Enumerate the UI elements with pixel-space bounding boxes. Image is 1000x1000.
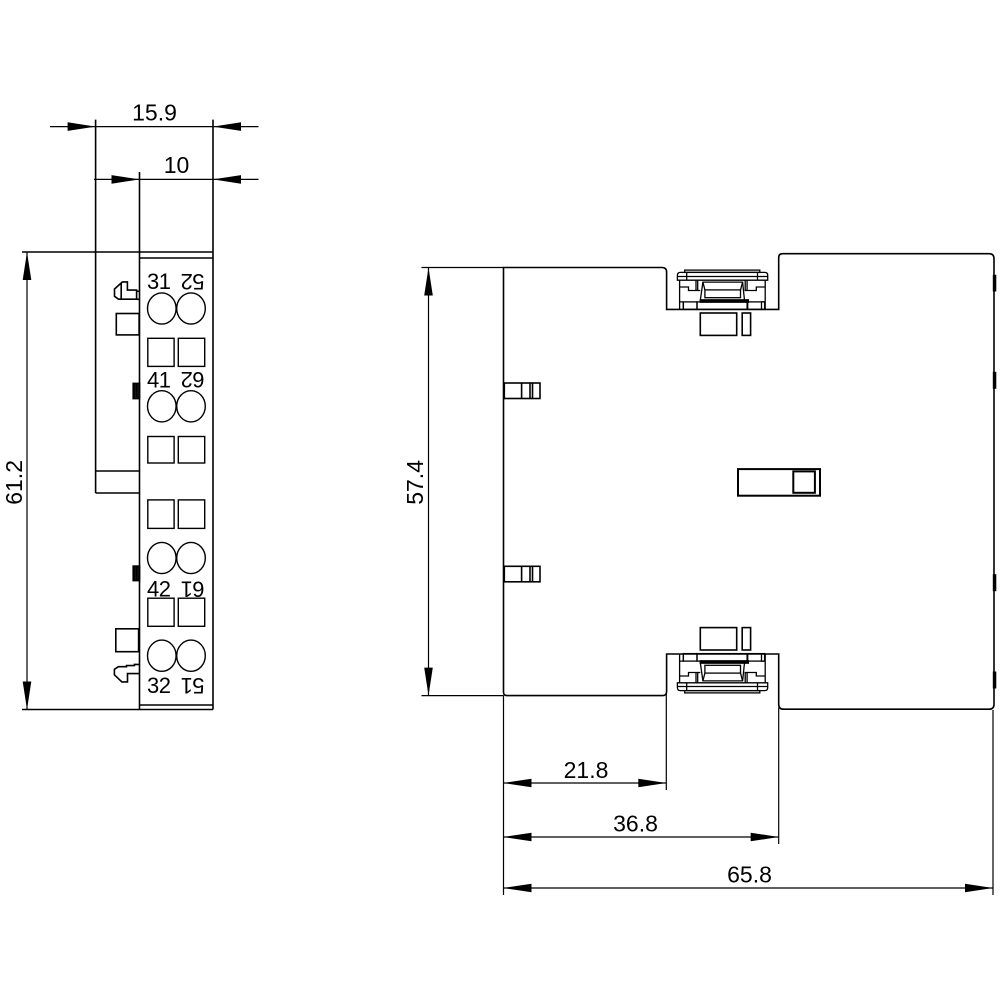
svg-text:36.8: 36.8 — [613, 811, 658, 837]
svg-text:61.2: 61.2 — [1, 460, 27, 505]
svg-text:65.8: 65.8 — [727, 862, 772, 888]
svg-text:52: 52 — [181, 269, 205, 294]
svg-text:41: 41 — [147, 367, 171, 392]
svg-text:42: 42 — [147, 577, 171, 602]
svg-text:57.4: 57.4 — [402, 460, 428, 505]
svg-text:21.8: 21.8 — [564, 757, 609, 783]
svg-text:61: 61 — [181, 576, 205, 601]
svg-text:31: 31 — [147, 269, 171, 294]
svg-text:32: 32 — [147, 673, 171, 698]
svg-text:51: 51 — [181, 673, 205, 698]
svg-text:62: 62 — [181, 367, 205, 392]
svg-text:15.9: 15.9 — [132, 100, 177, 126]
svg-text:10: 10 — [164, 152, 190, 178]
